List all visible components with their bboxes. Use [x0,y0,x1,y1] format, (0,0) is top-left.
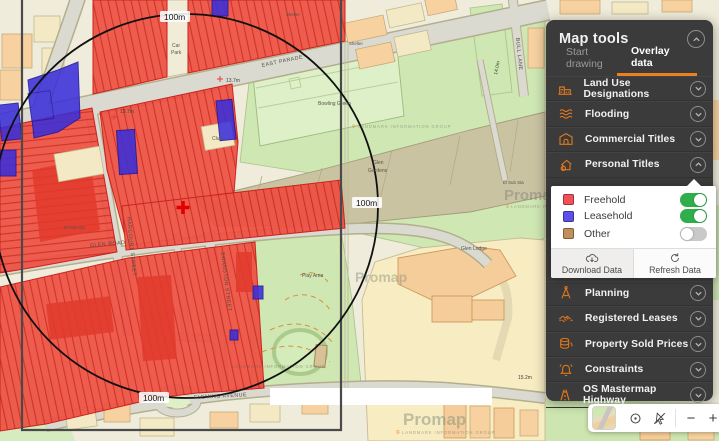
minimap-thumbnail[interactable] [592,406,616,430]
chevron-down-icon[interactable] [690,336,706,352]
svg-text:15.2m: 15.2m [518,375,532,381]
section-label: Commercial Titles [585,134,675,145]
chevron-down-icon[interactable] [690,311,706,327]
locate-button[interactable] [623,406,647,430]
section-label: Constraints [585,364,643,375]
svg-text:13.7m: 13.7m [120,109,134,115]
cloud-download-icon [585,252,599,264]
map-toolbar: − + [588,404,719,432]
layer-row-leasehold: Leasehold [551,208,716,226]
svg-text:Car: Car [172,43,180,49]
svg-text:13.7m: 13.7m [226,78,240,84]
section-commercial-titles[interactable]: Commercial Titles [546,127,713,152]
svg-text:El Sub Sta: El Sub Sta [64,225,85,230]
layer-label: Leasehold [584,210,632,222]
svg-text:©: © [396,429,400,436]
svg-text:Glen Lodge: Glen Lodge [461,246,487,252]
svg-text:Play Area: Play Area [302,273,324,279]
svg-text:El Sub Sta: El Sub Sta [503,180,524,185]
svg-text:LANDMARK INFORMATION GROUP: LANDMARK INFORMATION GROUP [358,124,451,129]
layer-label: Other [584,228,610,240]
freehold-toggle[interactable] [680,193,707,207]
leasehold-toggle[interactable] [680,209,707,223]
section-label: Registered Leases [585,313,678,324]
chevron-down-icon[interactable] [690,131,706,147]
section-label: Planning [585,288,629,299]
chevron-down-icon[interactable] [690,81,706,97]
svg-text:Glen: Glen [373,160,384,166]
svg-text:Promap: Promap [403,410,466,429]
alert-bell-icon [556,362,575,378]
svg-text:100m: 100m [164,12,185,22]
section-label: Personal Titles [585,159,660,170]
chevron-down-icon[interactable] [690,285,706,301]
section-land-use-designations[interactable]: Land Use Designations [546,76,713,101]
layer-row-other: Other [551,225,716,243]
zoom-in-button[interactable]: + [702,410,719,427]
warehouse-icon [556,131,575,147]
other-swatch [563,228,574,239]
section-registered-leases[interactable]: Registered Leases [546,306,713,331]
leasehold-swatch [563,211,574,222]
chevron-up-icon[interactable] [690,157,706,173]
freehold-swatch [563,194,574,205]
chevron-down-icon[interactable] [690,387,706,403]
disable-pointer-button[interactable] [647,406,671,430]
panel-tabs: Start drawing Overlay data [546,52,713,76]
road-icon [556,387,573,403]
svg-text:Shelter: Shelter [349,41,363,46]
map-tools-panel: Map tools Start drawing Overlay data Lan… [546,20,713,401]
refresh-icon [669,252,681,264]
section-planning[interactable]: Planning [546,281,713,306]
personal-titles-flyout: Freehold Leasehold Other Download Data [546,186,713,278]
section-property-sold-prices[interactable]: Property Sold Prices [546,332,713,357]
layer-label: Freehold [584,194,625,206]
other-toggle[interactable] [680,227,707,241]
svg-text:Shelter: Shelter [286,12,300,17]
chevron-down-icon[interactable] [690,362,706,378]
blank-tile-band [270,388,492,405]
svg-text:100m: 100m [356,198,377,208]
tab-start-drawing[interactable]: Start drawing [566,46,617,76]
coins-icon [556,336,575,352]
section-flooding[interactable]: Flooding [546,101,713,126]
flyout-notch [686,179,702,187]
section-label: Land Use Designations [583,78,690,100]
zoom-out-button[interactable]: − [680,410,702,427]
svg-text:Gardens: Gardens [368,168,388,174]
section-label: Flooding [585,109,629,120]
target-icon [628,411,643,426]
chevron-down-icon[interactable] [690,106,706,122]
svg-text:LANDMARK INFORMATION GROUP: LANDMARK INFORMATION GROUP [232,364,325,369]
section-personal-titles[interactable]: Personal Titles [546,152,713,177]
svg-text:Park: Park [171,50,182,56]
city-buildings-icon [556,81,573,97]
pointer-slash-icon [652,411,667,426]
download-data-label: Download Data [562,265,622,275]
section-constraints[interactable]: Constraints [546,357,713,382]
refresh-data-button[interactable]: Refresh Data [634,249,716,278]
toolbar-divider [675,409,676,427]
svg-text:LANDMARK INFORMATION GROUP: LANDMARK INFORMATION GROUP [402,430,495,435]
download-data-button[interactable]: Download Data [551,249,634,278]
svg-text:Bowling Green: Bowling Green [318,101,351,107]
svg-text:Promap: Promap [355,269,407,285]
refresh-data-label: Refresh Data [649,265,701,275]
svg-text:Club: Club [212,136,223,142]
water-waves-icon [556,106,575,122]
section-label: Property Sold Prices [585,339,688,350]
house-tag-icon [556,157,575,173]
layer-row-freehold: Freehold [551,186,716,208]
handshake-icon [556,311,575,327]
section-label: OS Mastermap Highway [583,384,690,406]
drafting-compass-icon [556,285,575,301]
chevron-up-icon [692,35,701,44]
tab-overlay-data[interactable]: Overlay data [617,45,697,76]
svg-text:100m: 100m [143,393,164,403]
